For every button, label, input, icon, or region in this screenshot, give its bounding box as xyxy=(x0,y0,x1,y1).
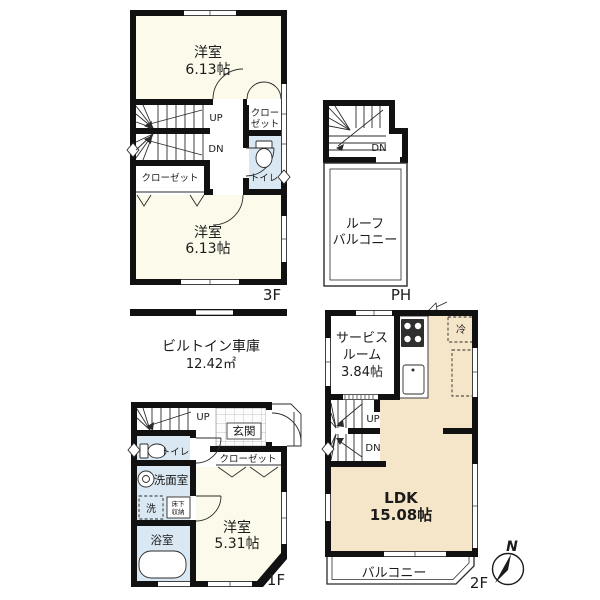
fridge-label: 冷 xyxy=(456,323,466,336)
toilet-label: トイレ xyxy=(161,447,190,458)
floor-plan-canvas: 洋室 6.13帖 クロー ゼット トイレ UP DN クローゼット 洋室 6.1… xyxy=(0,0,600,600)
room-size: 6.13帖 xyxy=(185,62,230,78)
sink-icon xyxy=(138,471,154,487)
closet-label: クローゼット xyxy=(141,172,198,184)
compass-north-label: N xyxy=(506,539,518,555)
bathroom-label: 浴室 xyxy=(151,533,174,547)
sliding-door xyxy=(343,395,378,400)
garage-size: 12.42㎡ xyxy=(186,357,236,372)
entrance-label: 玄関 xyxy=(233,424,256,438)
toilet-icon xyxy=(256,141,272,168)
bathtub-icon xyxy=(139,551,186,578)
washer-label: 洗 xyxy=(146,503,156,515)
stairs-up-label: UP xyxy=(366,414,379,425)
floor-label-ph: PH xyxy=(391,286,411,304)
garage-label: ビルトイン車庫 xyxy=(162,338,260,355)
room-label: 洋室 xyxy=(194,224,222,241)
floor-1f: ビルトイン車庫 12.42㎡ xyxy=(128,309,301,589)
closet-label: クローゼット xyxy=(219,453,276,465)
room-label: 洋室 xyxy=(194,44,222,61)
floor-3f: 洋室 6.13帖 クロー ゼット トイレ UP DN クローゼット 洋室 6.1… xyxy=(127,10,290,304)
underfloor-label: 収納 xyxy=(172,507,185,516)
stairs-dn-label: DN xyxy=(371,143,386,154)
floor-label-2f: 2F xyxy=(470,574,488,592)
ldk-label: LDK xyxy=(384,489,419,507)
stairs-dn-label: DN xyxy=(208,144,223,155)
toilet-label: トイレ xyxy=(250,173,279,184)
underfloor-label: 床下 xyxy=(172,499,186,508)
walls-ph xyxy=(323,100,408,163)
service-room-label: ルーム xyxy=(343,348,382,363)
room-size: 6.13帖 xyxy=(185,241,230,257)
washroom-label: 洗面室 xyxy=(154,473,189,487)
stairs-up-label: UP xyxy=(209,113,222,124)
service-room-label: サービス xyxy=(336,331,388,346)
balcony-label: バルコニー xyxy=(362,566,427,581)
vent-window-icon xyxy=(127,143,139,157)
room-size: 5.31帖 xyxy=(214,536,259,552)
garage-front xyxy=(130,309,287,316)
stairs-up-label: UP xyxy=(196,412,209,423)
closet-label: クロー xyxy=(251,108,280,119)
compass-icon: N xyxy=(493,539,524,585)
stove-icon xyxy=(401,319,424,347)
stairs-dn-label: DN xyxy=(365,443,380,454)
floor-2f: サービス ルーム 3.84帖 冷 UP DN LDK 15.08帖 バルコニー … xyxy=(322,302,488,592)
floor-label-3f: 3F xyxy=(263,286,281,304)
vent-arrow-icon xyxy=(428,302,447,311)
floor-label-1f: 1F xyxy=(267,571,285,589)
ldk-size: 15.08帖 xyxy=(370,506,432,524)
roof-balcony-label: ルーフ xyxy=(346,217,384,232)
room-label: 洋室 xyxy=(223,519,251,536)
closet-label: ゼット xyxy=(251,118,280,130)
entrance-porch xyxy=(272,404,301,446)
floor-ph: DN ルーフ バルコニー PH xyxy=(323,100,411,304)
stairs-1f xyxy=(137,408,191,430)
kitchen-sink-icon xyxy=(403,365,424,394)
roof-balcony-label: バルコニー xyxy=(333,233,398,248)
service-room-size: 3.84帖 xyxy=(341,365,383,380)
